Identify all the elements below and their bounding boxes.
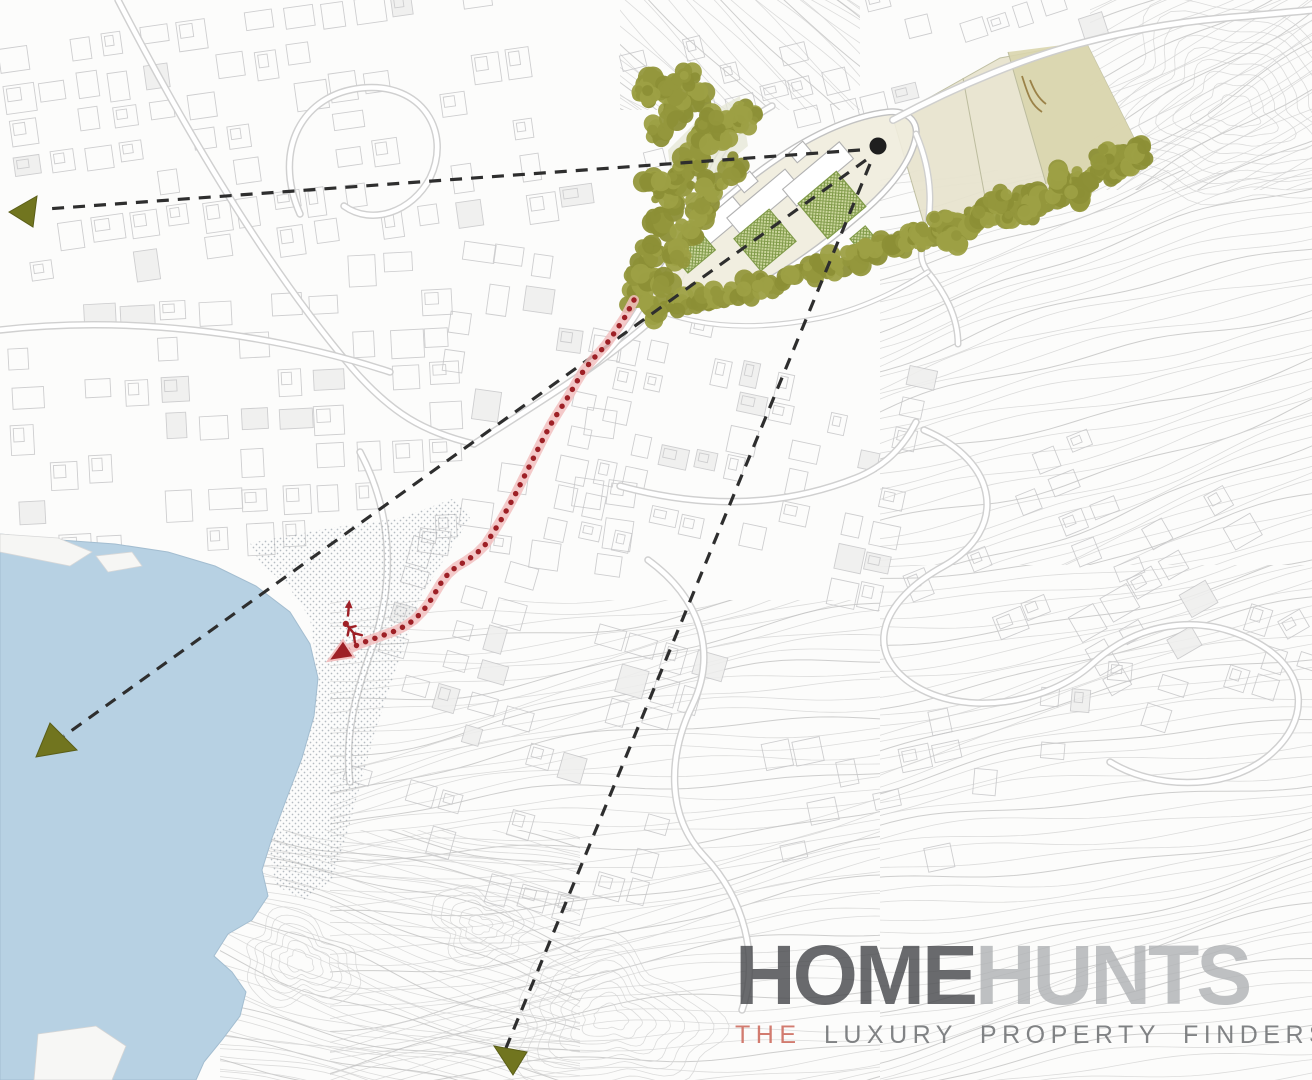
site-plan-page: HOMEHUNTS THE LUXURY PROPERTY FINDERS xyxy=(0,0,1312,1080)
site-plan-map xyxy=(0,0,1312,1080)
viewpoint-marker xyxy=(870,138,887,155)
